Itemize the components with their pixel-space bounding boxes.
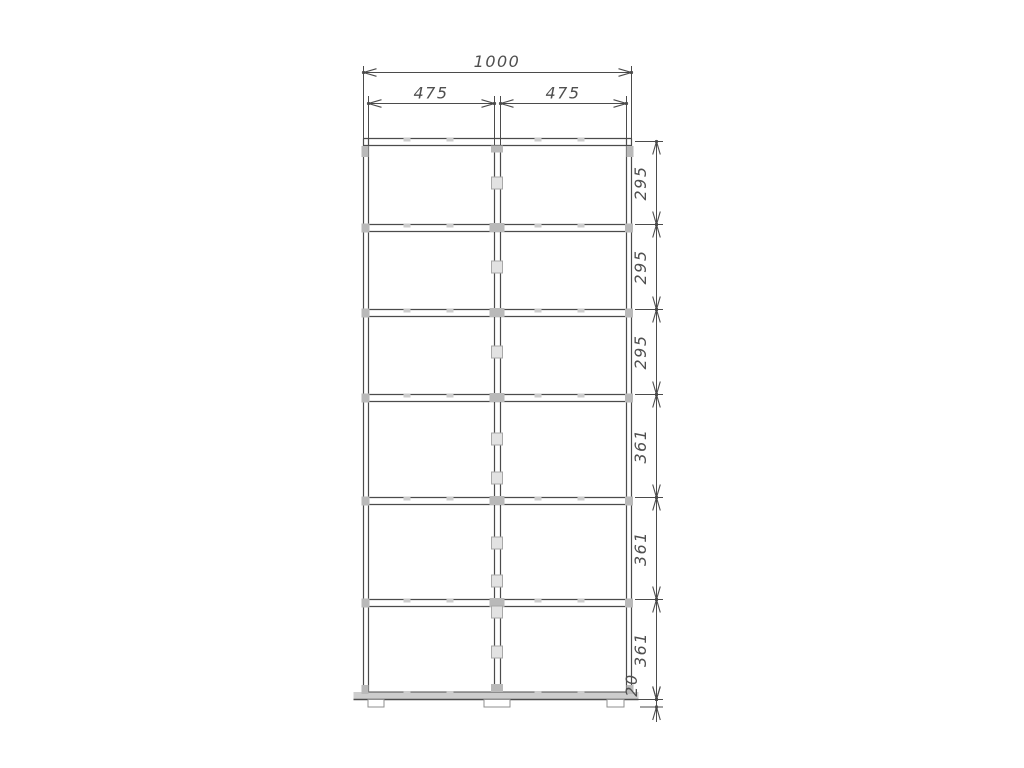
shelf-dowel-mark [404,599,411,603]
dimension-tip-dot [655,598,658,601]
shelf-dowel-mark [447,394,454,398]
dimension-tip-dot [655,706,658,709]
dimension-tip-dot [493,102,496,105]
left-side-shelf-connector [362,224,370,233]
shelf-dowel-mark [535,224,542,228]
shelf-dowel-mark [578,394,585,398]
dimension-tip-dot [367,102,370,105]
shelf-dowel-mark [447,309,454,313]
dimension-text-row-height: 295 [631,334,650,369]
shelf-dowel-mark [404,497,411,501]
divider-shelf-connector [490,393,505,402]
divider-cam-connector [492,472,503,484]
divider-cam-connector [492,646,503,658]
dimension-tip-dot [362,71,365,74]
divider-top-connector [491,146,503,153]
dimension-tip-dot [655,223,658,226]
divider-cam-connector [492,433,503,445]
shelf-dowel-mark [404,309,411,313]
shelf-dowel-mark [447,224,454,228]
dimension-text-total-width: 1000 [474,52,521,71]
left-side-shelf-connector [362,309,370,318]
dimension-text-row-height: 295 [631,249,650,284]
shelf-dowel-mark [447,497,454,501]
shelf-dowel-mark [578,691,585,695]
left-bottom-corner-connector [362,685,369,694]
dimension-text-row-height: 361 [631,531,650,566]
shelf-dowel-mark [578,138,585,142]
shelf-dowel-mark [447,599,454,603]
shelf-dowel-mark [404,691,411,695]
shelf-dowel-mark [404,394,411,398]
right-side-shelf-connector [625,394,633,403]
shelf-dowel-mark [535,599,542,603]
shelf-dowel-mark [535,309,542,313]
divider-shelf-connector [490,223,505,232]
dimension-tip-dot [655,698,658,701]
divider-shelf-connector [490,308,505,317]
dimension-tip-dot [499,102,502,105]
divider-cam-connector [492,177,503,189]
dimension-tip-dot [655,393,658,396]
divider-bottom-connector [491,684,503,692]
foot [368,700,384,708]
shelf-dowel-mark [578,309,585,313]
shelf-dowel-mark [578,497,585,501]
shelf-dowel-mark [578,224,585,228]
left-side-shelf-connector [362,394,370,403]
cabinet-feet [368,700,624,708]
furniture-front-elevation-drawing: 100047547529529529536136136120 [0,0,1024,768]
shelf-dowel-mark [535,691,542,695]
shelf-dowel-mark [447,691,454,695]
dimension-text-left-column: 475 [413,84,448,103]
divider-cam-connector [492,537,503,549]
drawing-canvas: 100047547529529529536136136120 [0,0,1024,768]
divider-cam-connector [492,261,503,273]
divider-shelf-connector [490,496,505,505]
shelf-dowel-mark [535,394,542,398]
connector-marks [362,138,634,696]
left-top-corner-connector [362,146,369,157]
foot [607,700,624,708]
shelf-dowel-mark [535,497,542,501]
dimension-annotations: 100047547529529529536136136120 [362,52,663,722]
dimension-tip-dot [655,308,658,311]
dimension-tip-dot [655,140,658,143]
dimension-text-row-height: 361 [631,632,650,667]
right-side-shelf-connector [625,599,633,608]
shelf-dowel-mark [447,138,454,142]
right-side-shelf-connector [625,497,633,506]
foot [484,700,510,708]
divider-cam-connector [492,346,503,358]
shelf-dowel-mark [404,224,411,228]
shelf-dowel-mark [535,138,542,142]
shelf-dowel-mark [578,599,585,603]
shelf-dowel-mark [404,138,411,142]
left-side-shelf-connector [362,497,370,506]
divider-cam-connector [492,606,503,618]
dimension-text-right-column: 475 [545,84,580,103]
right-side-shelf-connector [625,309,633,318]
dimension-text-base-height: 20 [622,673,641,696]
dimension-text-row-height: 361 [631,428,650,463]
divider-cam-connector [492,575,503,587]
right-side-shelf-connector [625,224,633,233]
dimension-tip-dot [625,102,628,105]
right-top-corner-connector [627,146,634,157]
left-side-shelf-connector [362,599,370,608]
bottom-panel-band [354,692,639,700]
dimension-text-row-height: 295 [631,165,650,200]
dimension-tip-dot [655,496,658,499]
dimension-tip-dot [630,71,633,74]
